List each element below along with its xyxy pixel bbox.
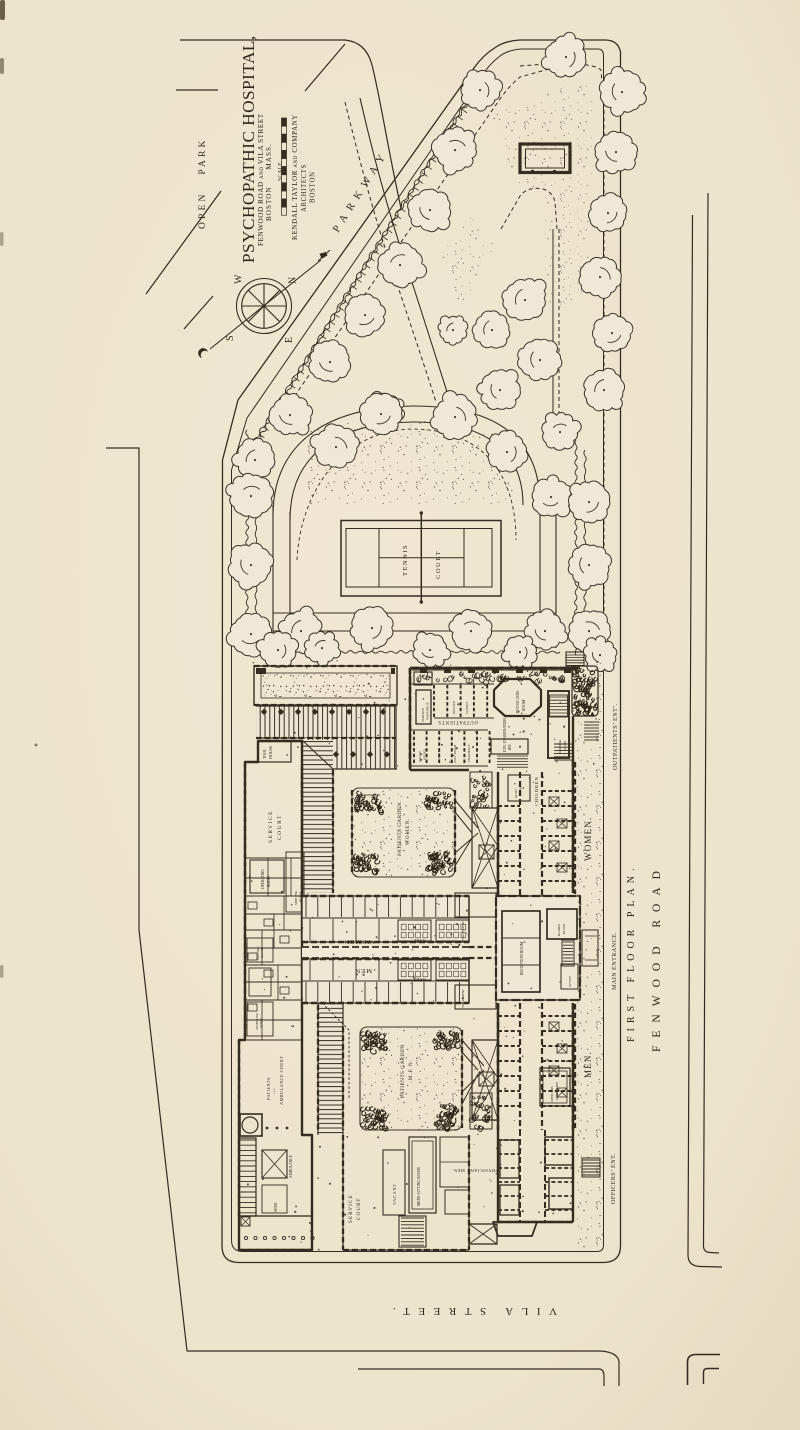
svg-text:PHYSICIAN - MEN.: PHYSICIAN - MEN. — [452, 1168, 498, 1173]
svg-text:WOMEN.: WOMEN. — [405, 818, 411, 845]
svg-text:HOUSE: HOUSE — [268, 745, 273, 759]
svg-text:OFFICE: OFFICE — [423, 749, 427, 760]
svg-text:WOMEN: WOMEN — [344, 938, 374, 945]
svg-text:M E N.: M E N. — [409, 1059, 414, 1080]
svg-text:VILA STREET.: VILA STREET. — [384, 1305, 557, 1317]
svg-text:OPERATING: OPERATING — [261, 869, 265, 889]
svg-text:FENWOOD ROAD: FENWOOD ROAD — [651, 863, 663, 1052]
svg-text:ARCHITECTS: ARCHITECTS — [301, 164, 308, 212]
svg-text:RECORD: RECORD — [452, 700, 456, 714]
svg-text:WARD: WARD — [413, 977, 426, 981]
svg-text:SERVICE: SERVICE — [268, 810, 274, 843]
svg-text:QUIET: QUIET — [514, 788, 518, 798]
svg-text:OUTPATIENTS: OUTPATIENTS — [438, 719, 478, 724]
svg-text:COURT: COURT — [277, 814, 283, 840]
svg-text:TOILET: TOILET — [437, 751, 441, 762]
svg-text:ROOM: ROOM — [267, 875, 271, 887]
svg-text:OFFICE: OFFICE — [259, 1017, 263, 1028]
svg-text:PHYSICIANS: PHYSICIANS — [516, 691, 520, 713]
svg-text:BOSTON MASS.: BOSTON MASS. — [265, 143, 273, 221]
svg-text:PSYCHOPATHIC HOSPITAL,: PSYCHOPATHIC HOSPITAL, — [239, 35, 258, 263]
svg-text:OFFICERS’ ENT.: OFFICERS’ ENT. — [610, 1153, 617, 1204]
svg-text:AMBULANCE COURT: AMBULANCE COURT — [279, 1056, 284, 1105]
svg-text:OFFICE: OFFICE — [568, 976, 572, 987]
svg-text:WOMEN.: WOMEN. — [583, 817, 593, 861]
svg-text:ROOM: ROOM — [260, 948, 264, 958]
svg-text:MEN.: MEN. — [583, 1051, 593, 1078]
svg-text:WARD: WARD — [413, 938, 426, 942]
svg-text:AMBULANCE: AMBULANCE — [289, 1154, 293, 1178]
svg-text:ROOM: ROOM — [563, 741, 567, 751]
svg-text:WAITING R: WAITING R — [426, 702, 430, 720]
svg-text:OPEN PARK: OPEN PARK — [198, 137, 208, 229]
svg-text:SHED: SHED — [274, 1202, 278, 1212]
svg-text:E: E — [284, 336, 295, 343]
svg-text:DINING RM: DINING RM — [555, 1082, 559, 1100]
svg-text:STATION: STATION — [421, 708, 425, 722]
svg-text:ROOM: ROOM — [562, 924, 566, 934]
svg-text:SERVING: SERVING — [294, 890, 298, 905]
svg-text:S: S — [225, 335, 236, 341]
svg-text:KENDALL TAYLOR AND COMPANY: KENDALL TAYLOR AND COMPANY — [291, 114, 299, 240]
svg-text:PATIENTS GARDEN: PATIENTS GARDEN — [400, 1044, 406, 1098]
svg-text:MENS SITTING ROOM: MENS SITTING ROOM — [417, 1167, 421, 1206]
svg-text:CLERKS: CLERKS — [465, 702, 469, 714]
svg-text:MEN: MEN — [355, 967, 372, 974]
svg-text:TENNIS: TENNIS — [402, 544, 409, 576]
svg-text:PHARMACY: PHARMACY — [467, 743, 471, 762]
svg-text:OFFICERS: OFFICERS — [550, 1086, 554, 1102]
svg-text:RECEPTION ROOM: RECEPTION ROOM — [520, 941, 524, 975]
svg-text:ETH. EXAMINATION: ETH. EXAMINATION — [503, 718, 507, 752]
svg-text:SERVICE: SERVICE — [349, 1194, 354, 1223]
svg-text:FENWOOD ROAD AND VILA STREET: FENWOOD ROAD AND VILA STREET — [257, 113, 265, 246]
svg-text:BOSTON: BOSTON — [310, 171, 317, 203]
svg-text:ROOM: ROOM — [522, 699, 526, 711]
svg-text:FIRST FLOOR PLAN.: FIRST FLOOR PLAN. — [626, 864, 637, 1042]
svg-text:VACANT: VACANT — [392, 1183, 397, 1205]
svg-text:OUTPATIENTS’ ENT’.: OUTPATIENTS’ ENT’. — [612, 703, 619, 770]
svg-text:MAIN ENTRANCE.: MAIN ENTRANCE. — [611, 932, 618, 990]
svg-text:N: N — [288, 276, 299, 284]
svg-text:WAITING: WAITING — [558, 739, 562, 754]
svg-text:PATIENTS GARDEN.: PATIENTS GARDEN. — [397, 800, 403, 856]
svg-text:RM: RM — [508, 744, 512, 750]
svg-text:TOOL: TOOL — [262, 748, 267, 759]
svg-text:TREATMENT: TREATMENT — [461, 921, 465, 940]
svg-text:W: W — [234, 274, 245, 284]
svg-text:PATIENTS: PATIENTS — [266, 1077, 271, 1100]
svg-text:ᴬᴺᴰ: ᴬᴺᴰ — [273, 1088, 277, 1094]
svg-text:COURT: COURT — [357, 1197, 362, 1220]
svg-text:BOARD: BOARD — [557, 924, 561, 936]
svg-text:CHILDREN: CHILDREN — [534, 776, 539, 806]
svg-text:COURT: COURT — [435, 550, 442, 579]
svg-text:ROOM: ROOM — [519, 786, 523, 796]
